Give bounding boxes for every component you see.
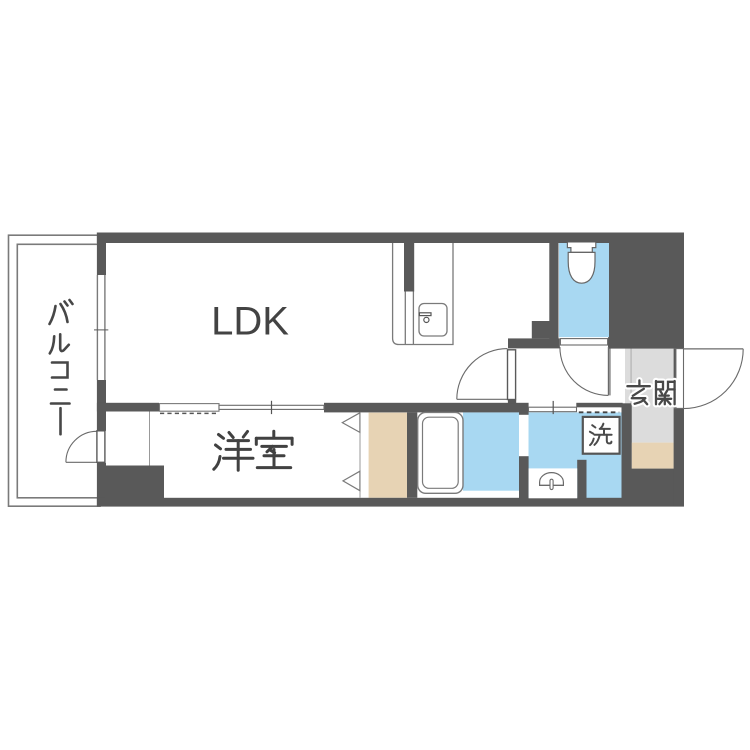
- svg-text:LDK: LDK: [211, 300, 289, 344]
